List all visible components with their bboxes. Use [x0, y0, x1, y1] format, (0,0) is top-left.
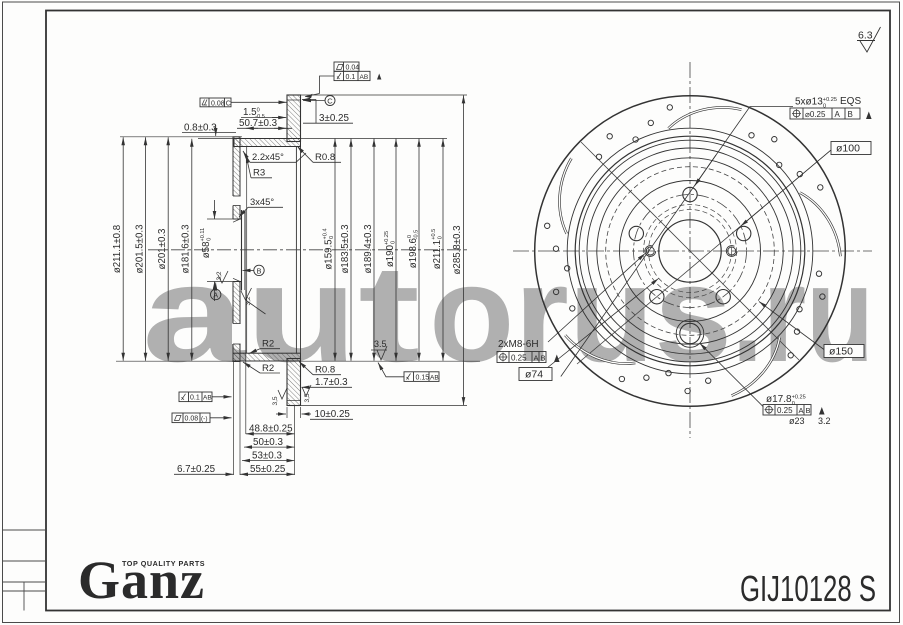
svg-text:ø211.1±0.8: ø211.1±0.8 [112, 225, 123, 273]
svg-text:AB: AB [203, 395, 212, 402]
svg-text:6.3: 6.3 [858, 30, 873, 42]
svg-text:A: A [534, 354, 539, 363]
svg-text:ø189.4±0.3: ø189.4±0.3 [363, 225, 374, 274]
svg-text:3.2: 3.2 [818, 416, 831, 426]
svg-text:ø183.5±0.3: ø183.5±0.3 [340, 225, 351, 274]
svg-text:3,5: 3,5 [272, 396, 279, 405]
svg-text:48.8±0.25: 48.8±0.25 [249, 424, 293, 435]
svg-text:ø150: ø150 [829, 346, 853, 358]
svg-text:R0.8: R0.8 [315, 152, 335, 163]
svg-text:AB: AB [360, 74, 369, 81]
svg-text:Ganz: Ganz [78, 550, 205, 610]
svg-text:AB: AB [430, 375, 439, 382]
svg-text:3.5: 3.5 [374, 339, 387, 349]
svg-text:B: B [806, 406, 811, 415]
svg-text:ø100: ø100 [836, 143, 860, 155]
svg-text:55±0.25: 55±0.25 [250, 464, 286, 475]
svg-text:50±0.3: 50±0.3 [253, 437, 283, 448]
svg-text:ø201±0.3: ø201±0.3 [157, 229, 168, 270]
svg-text:0.8±0.3: 0.8±0.3 [184, 123, 217, 134]
svg-text:A: A [213, 291, 218, 300]
svg-text:1.7±0.3: 1.7±0.3 [315, 377, 348, 388]
svg-text:0.15: 0.15 [416, 375, 430, 382]
svg-text:0.1: 0.1 [346, 74, 356, 81]
svg-text:0.08: 0.08 [211, 100, 225, 107]
svg-text:ø181.6±0.3: ø181.6±0.3 [181, 225, 192, 274]
svg-text:C: C [226, 100, 231, 107]
svg-text:A: A [835, 110, 841, 119]
svg-text:B: B [541, 354, 546, 363]
svg-text:0.08: 0.08 [185, 416, 199, 423]
svg-text:GIJ10128 S: GIJ10128 S [740, 568, 876, 609]
svg-text:EQS: EQS [840, 96, 861, 107]
svg-text:orus: orus [429, 237, 732, 391]
svg-text:3,2: 3,2 [216, 271, 223, 280]
svg-text:ø74: ø74 [525, 369, 543, 381]
svg-text:ø285.8±0.3: ø285.8±0.3 [452, 226, 463, 275]
svg-text:ø201.5±0.3: ø201.5±0.3 [134, 225, 145, 274]
svg-text:2.2x45°: 2.2x45° [252, 151, 284, 162]
svg-text:3x45°: 3x45° [250, 196, 274, 207]
svg-text:(-): (-) [201, 416, 208, 423]
svg-text:B: B [257, 266, 262, 275]
svg-text:B: B [848, 110, 853, 119]
svg-text:⌀0.25: ⌀0.25 [805, 110, 826, 119]
svg-text:R2: R2 [262, 339, 274, 350]
svg-text:0.1: 0.1 [190, 395, 200, 402]
svg-text:0.25: 0.25 [511, 354, 527, 363]
svg-text:A: A [799, 406, 804, 415]
svg-text:0.25: 0.25 [777, 406, 793, 415]
svg-text:53±0.3: 53±0.3 [252, 450, 282, 461]
svg-text:C: C [327, 97, 333, 106]
svg-text:R0.8: R0.8 [315, 365, 335, 376]
svg-text:R3: R3 [253, 168, 265, 179]
svg-text:ø198.60-0.5: ø198.60-0.5 [408, 230, 420, 268]
svg-text:2xM8-6H: 2xM8-6H [498, 339, 539, 350]
svg-text:0.04: 0.04 [346, 65, 360, 72]
svg-text:10±0.25: 10±0.25 [315, 409, 351, 420]
svg-text:6.7±0.25: 6.7±0.25 [177, 464, 216, 475]
svg-text:ø23: ø23 [789, 416, 805, 426]
svg-text:3±0.25: 3±0.25 [319, 113, 349, 124]
svg-text:R2: R2 [262, 363, 274, 374]
